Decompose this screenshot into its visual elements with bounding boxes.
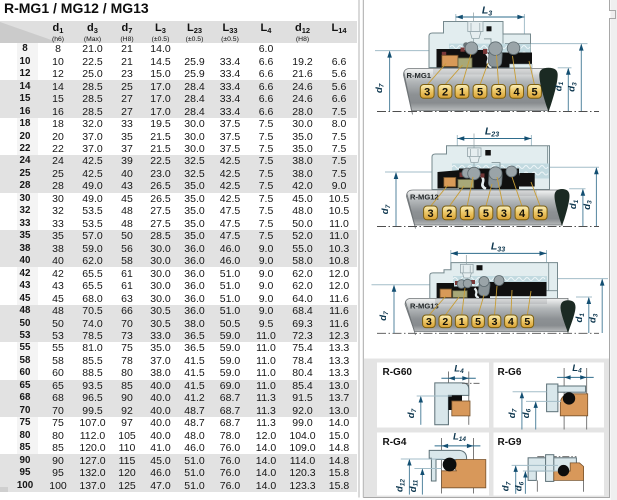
- svg-text:3: 3: [424, 86, 430, 98]
- svg-text:d7: d7: [378, 311, 390, 321]
- svg-text:4: 4: [519, 208, 526, 220]
- svg-text:5: 5: [531, 86, 537, 98]
- svg-text:3: 3: [426, 316, 432, 328]
- svg-text:3: 3: [492, 316, 498, 328]
- svg-text:d7: d7: [380, 204, 392, 214]
- svg-text:5: 5: [483, 208, 489, 220]
- svg-text:5: 5: [537, 208, 543, 220]
- svg-text:L3: L3: [482, 5, 492, 18]
- svg-text:R-MG1: R-MG1: [407, 71, 432, 80]
- svg-text:L33: L33: [491, 241, 505, 254]
- svg-text:2: 2: [446, 208, 452, 220]
- svg-text:1: 1: [464, 208, 470, 220]
- svg-text:1: 1: [459, 86, 465, 98]
- svg-text:d3: d3: [582, 200, 594, 210]
- svg-text:L23: L23: [485, 126, 499, 139]
- svg-text:2: 2: [442, 86, 448, 98]
- svg-text:3: 3: [496, 86, 502, 98]
- svg-text:R-G4: R-G4: [383, 437, 407, 448]
- svg-text:3: 3: [427, 208, 433, 220]
- svg-text:3: 3: [501, 208, 507, 220]
- svg-text:2: 2: [442, 316, 448, 328]
- svg-text:d7: d7: [374, 83, 386, 93]
- svg-text:d1: d1: [568, 199, 580, 209]
- svg-text:d1: d1: [574, 313, 586, 323]
- svg-text:5: 5: [475, 316, 481, 328]
- svg-text:4: 4: [514, 86, 521, 98]
- svg-text:1: 1: [459, 316, 465, 328]
- svg-text:R-G6: R-G6: [498, 367, 522, 378]
- svg-text:R-MG12: R-MG12: [410, 192, 439, 201]
- svg-text:R-G9: R-G9: [498, 437, 522, 448]
- svg-text:4: 4: [508, 316, 514, 328]
- svg-text:R-G60: R-G60: [383, 367, 413, 378]
- svg-text:5: 5: [477, 86, 483, 98]
- svg-text:d3: d3: [588, 313, 600, 323]
- svg-text:5: 5: [524, 316, 530, 328]
